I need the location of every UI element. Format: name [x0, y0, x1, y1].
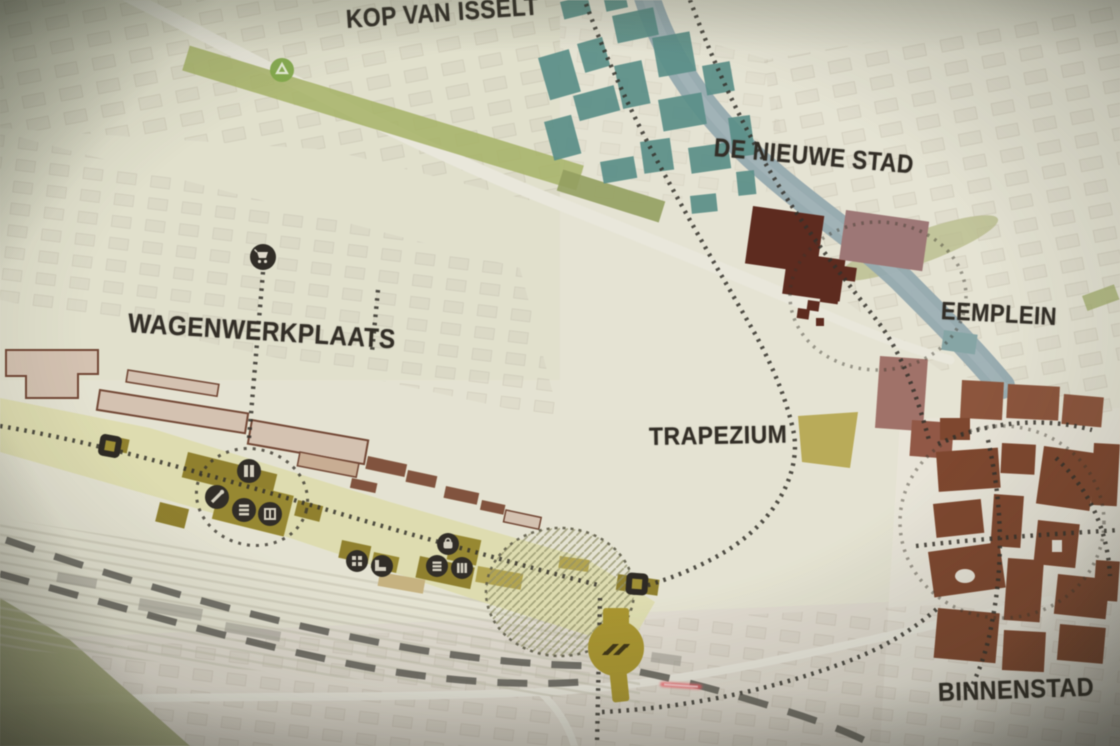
stripes-icon [451, 557, 473, 579]
stall-icon [426, 555, 448, 577]
industry-icon [237, 459, 261, 483]
site-entrance-icon-west [97, 433, 122, 458]
projected-planning-map-photo: KOP VAN ISSELT DE NIEUWE STAD EEMPLEIN W… [0, 0, 1120, 746]
recycling-icon [270, 58, 294, 82]
bag-icon [437, 533, 459, 555]
market-icon [232, 498, 256, 522]
boot-icon [371, 555, 393, 577]
grid-icon [346, 550, 368, 572]
label-binnenstad: BINNENSTAD [937, 672, 1094, 708]
site-entrance-icon-station [625, 572, 648, 595]
workshop-icon [205, 485, 229, 509]
map-graphics [0, 0, 1120, 746]
map-canvas: KOP VAN ISSELT DE NIEUWE STAD EEMPLEIN W… [0, 0, 1120, 746]
label-trapezium: TRAPEZIUM [649, 421, 788, 452]
shopping-cart-icon [250, 244, 276, 270]
storage-icon [258, 502, 282, 526]
label-eemplein: EEMPLEIN [940, 297, 1057, 332]
